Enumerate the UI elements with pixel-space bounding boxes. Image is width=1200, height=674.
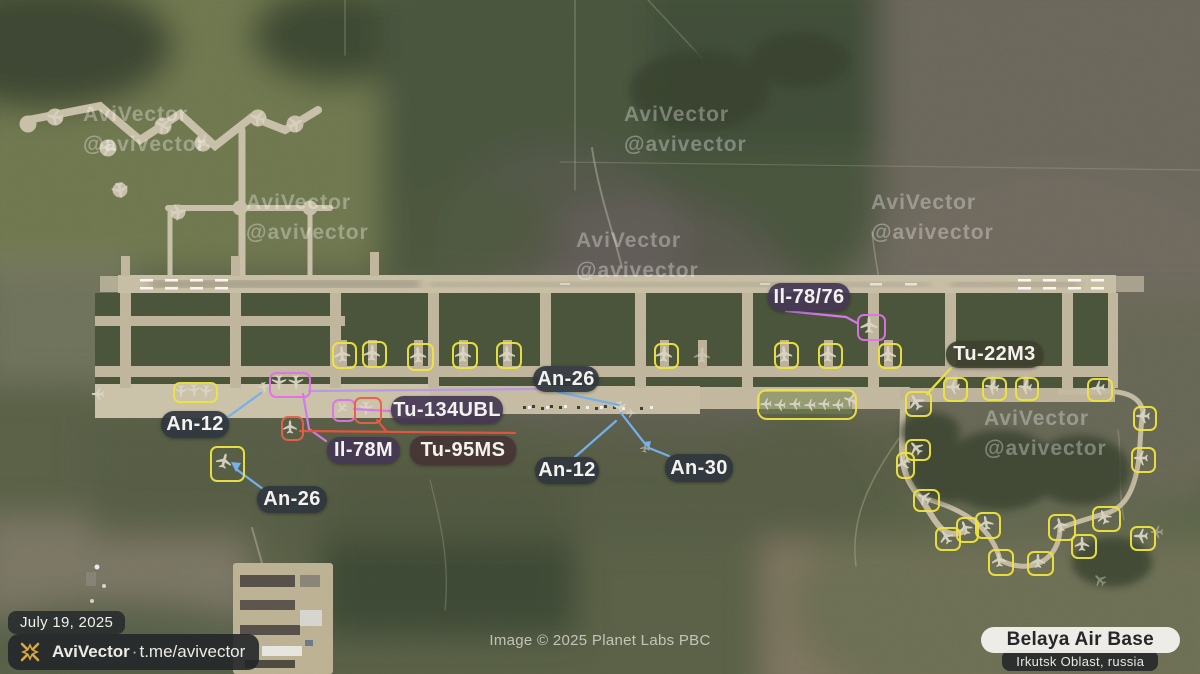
aircraft-type-label: An-26 bbox=[257, 486, 327, 513]
date-badge: July 19, 2025 bbox=[8, 611, 125, 634]
screenshot-root: AviVector@avivectorAviVector@avivectorAv… bbox=[0, 0, 1200, 674]
aircraft-type-label: An-12 bbox=[535, 457, 599, 484]
aircraft-type-label: Il-78M bbox=[327, 437, 400, 464]
aircraft-type-label: Tu-22M3 bbox=[946, 341, 1043, 368]
base-location: Irkutsk Oblast, russia bbox=[1002, 650, 1158, 671]
base-name-badge: Belaya Air Base Irkutsk Oblast, russia bbox=[981, 627, 1180, 671]
aircraft-type-label: Il-78/76 bbox=[768, 283, 850, 311]
satellite-image bbox=[0, 0, 1200, 674]
base-name: Belaya Air Base bbox=[981, 627, 1180, 653]
aircraft-type-label: An-12 bbox=[161, 411, 229, 438]
aircraft-type-label: Tu-134UBL bbox=[391, 396, 503, 424]
aircraft-type-label: An-26 bbox=[533, 366, 599, 392]
aircraft-type-label: Tu-95MS bbox=[410, 436, 516, 465]
aircraft-type-label: An-30 bbox=[665, 454, 733, 482]
